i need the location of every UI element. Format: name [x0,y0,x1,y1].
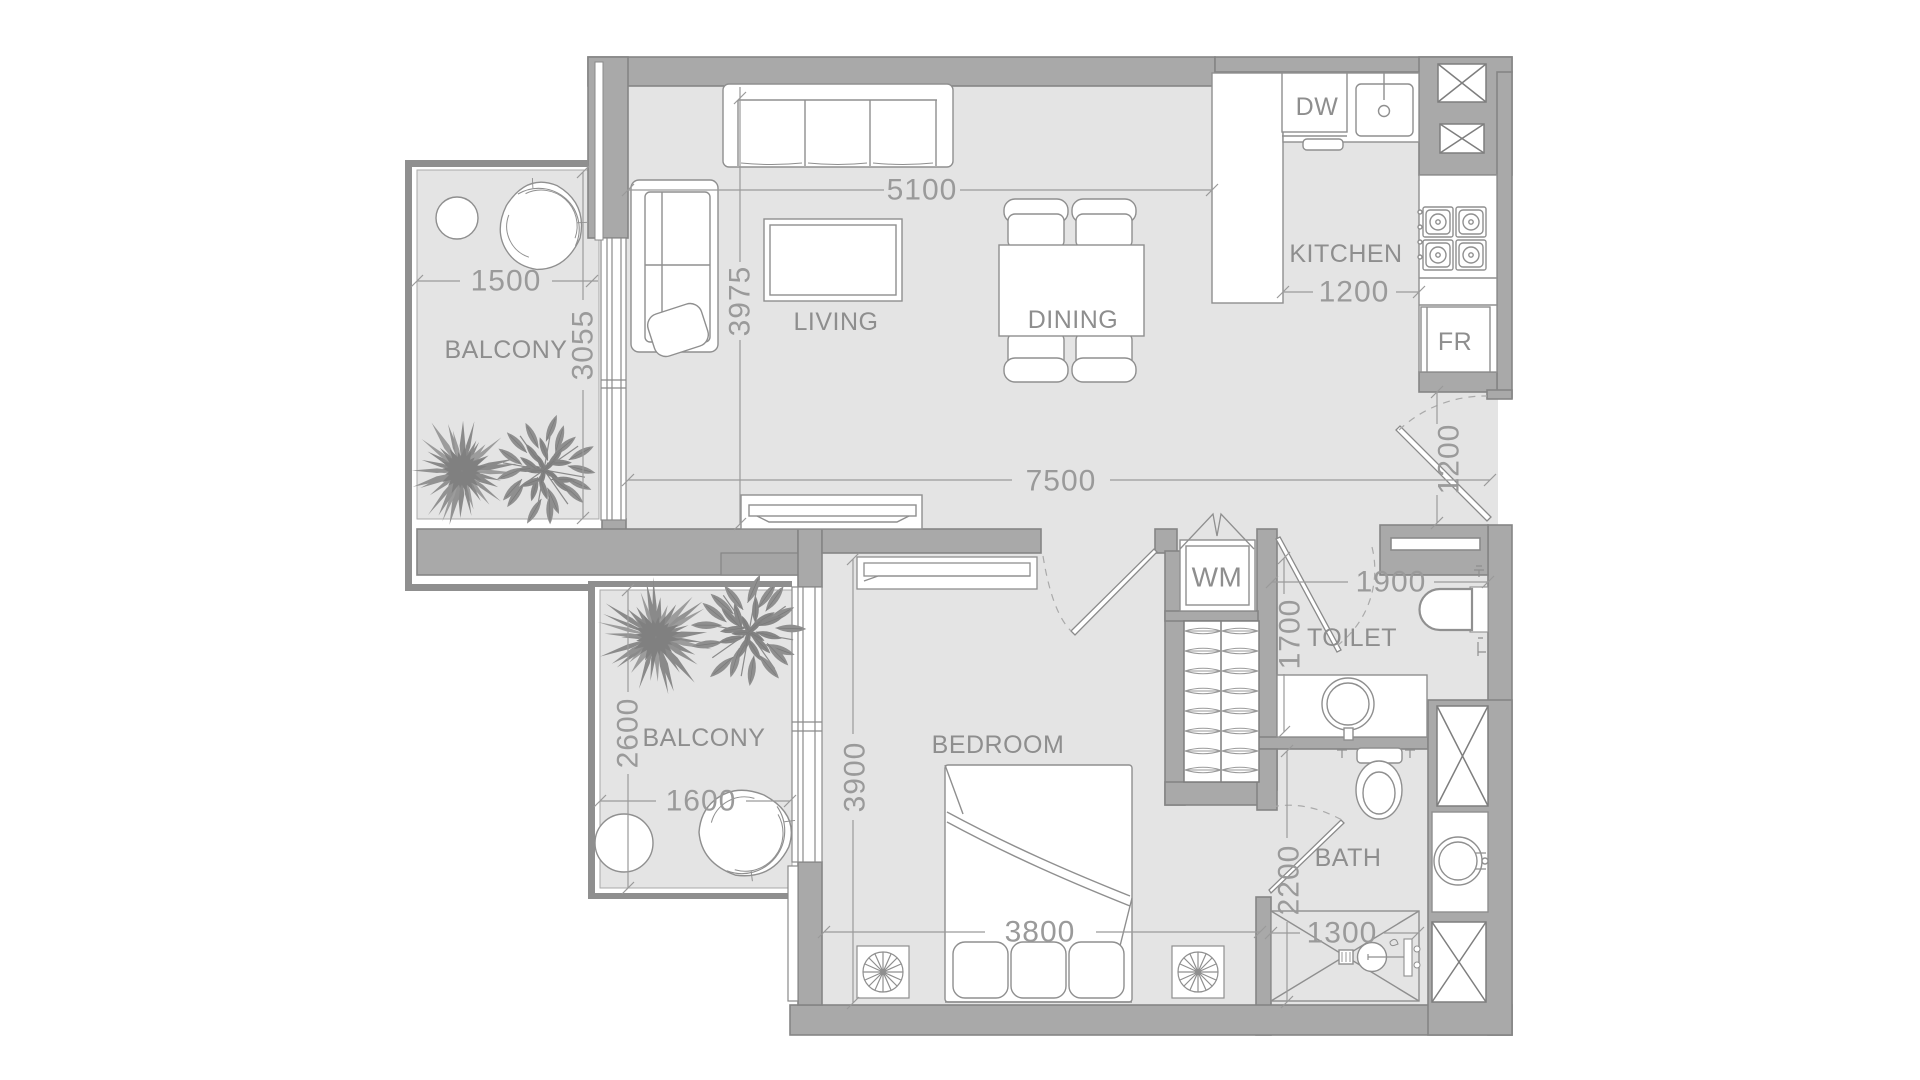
svg-text:LIVING: LIVING [794,308,879,336]
svg-text:WM: WM [1192,562,1243,593]
svg-text:1200: 1200 [1319,276,1390,309]
svg-text:1300: 1300 [1307,917,1378,950]
svg-text:3975: 3975 [724,266,757,337]
svg-text:7500: 7500 [1026,465,1097,498]
svg-text:1500: 1500 [471,265,542,298]
svg-text:5100: 5100 [887,174,958,207]
svg-text:3900: 3900 [839,742,872,813]
svg-text:1700: 1700 [1274,599,1307,670]
svg-text:BALCONY: BALCONY [643,724,766,752]
svg-text:BEDROOM: BEDROOM [932,731,1065,759]
svg-text:BALCONY: BALCONY [445,336,568,364]
svg-text:FR: FR [1438,328,1472,356]
svg-text:2200: 2200 [1273,845,1306,916]
svg-text:TOILET: TOILET [1307,624,1397,652]
svg-text:DW: DW [1296,93,1339,121]
svg-text:1900: 1900 [1356,566,1427,599]
svg-text:3800: 3800 [1005,916,1076,949]
svg-text:2600: 2600 [612,698,645,769]
svg-text:BATH: BATH [1315,844,1382,872]
svg-text:3055: 3055 [567,310,600,381]
svg-text:1600: 1600 [666,785,737,818]
svg-text:DINING: DINING [1028,306,1119,334]
svg-text:1200: 1200 [1433,424,1466,495]
svg-text:KITCHEN: KITCHEN [1289,240,1402,268]
